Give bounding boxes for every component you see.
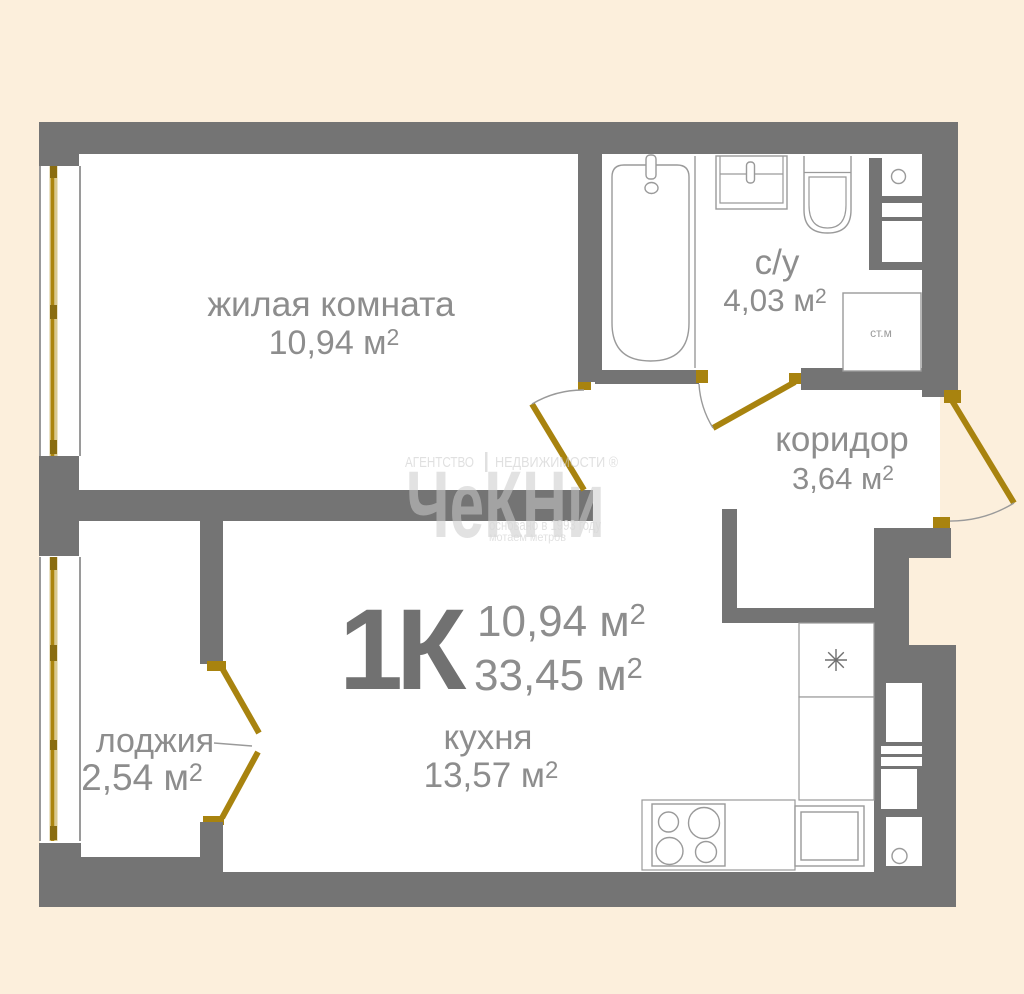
svg-text:13,57 м2: 13,57 м2 (424, 756, 559, 795)
svg-text:33,45 м2: 33,45 м2 (474, 651, 643, 700)
svg-text:10,94 м2: 10,94 м2 (269, 324, 400, 362)
svg-text:ст.м: ст.м (870, 326, 892, 340)
svg-text:4,03 м2: 4,03 м2 (723, 282, 826, 318)
svg-text:кухня: кухня (444, 718, 533, 757)
svg-text:с/у: с/у (755, 243, 800, 282)
svg-text:жилая комната: жилая комната (207, 284, 455, 324)
svg-text:10,94 м2: 10,94 м2 (477, 597, 646, 646)
svg-text:1К: 1К (339, 586, 467, 714)
svg-text:мотаем метров: мотаем метров (489, 530, 566, 544)
svg-text:3,64 м2: 3,64 м2 (792, 461, 894, 496)
svg-text:лоджия: лоджия (96, 722, 214, 760)
svg-text:коридор: коридор (775, 420, 909, 459)
svg-text:2,54 м2: 2,54 м2 (81, 757, 203, 798)
